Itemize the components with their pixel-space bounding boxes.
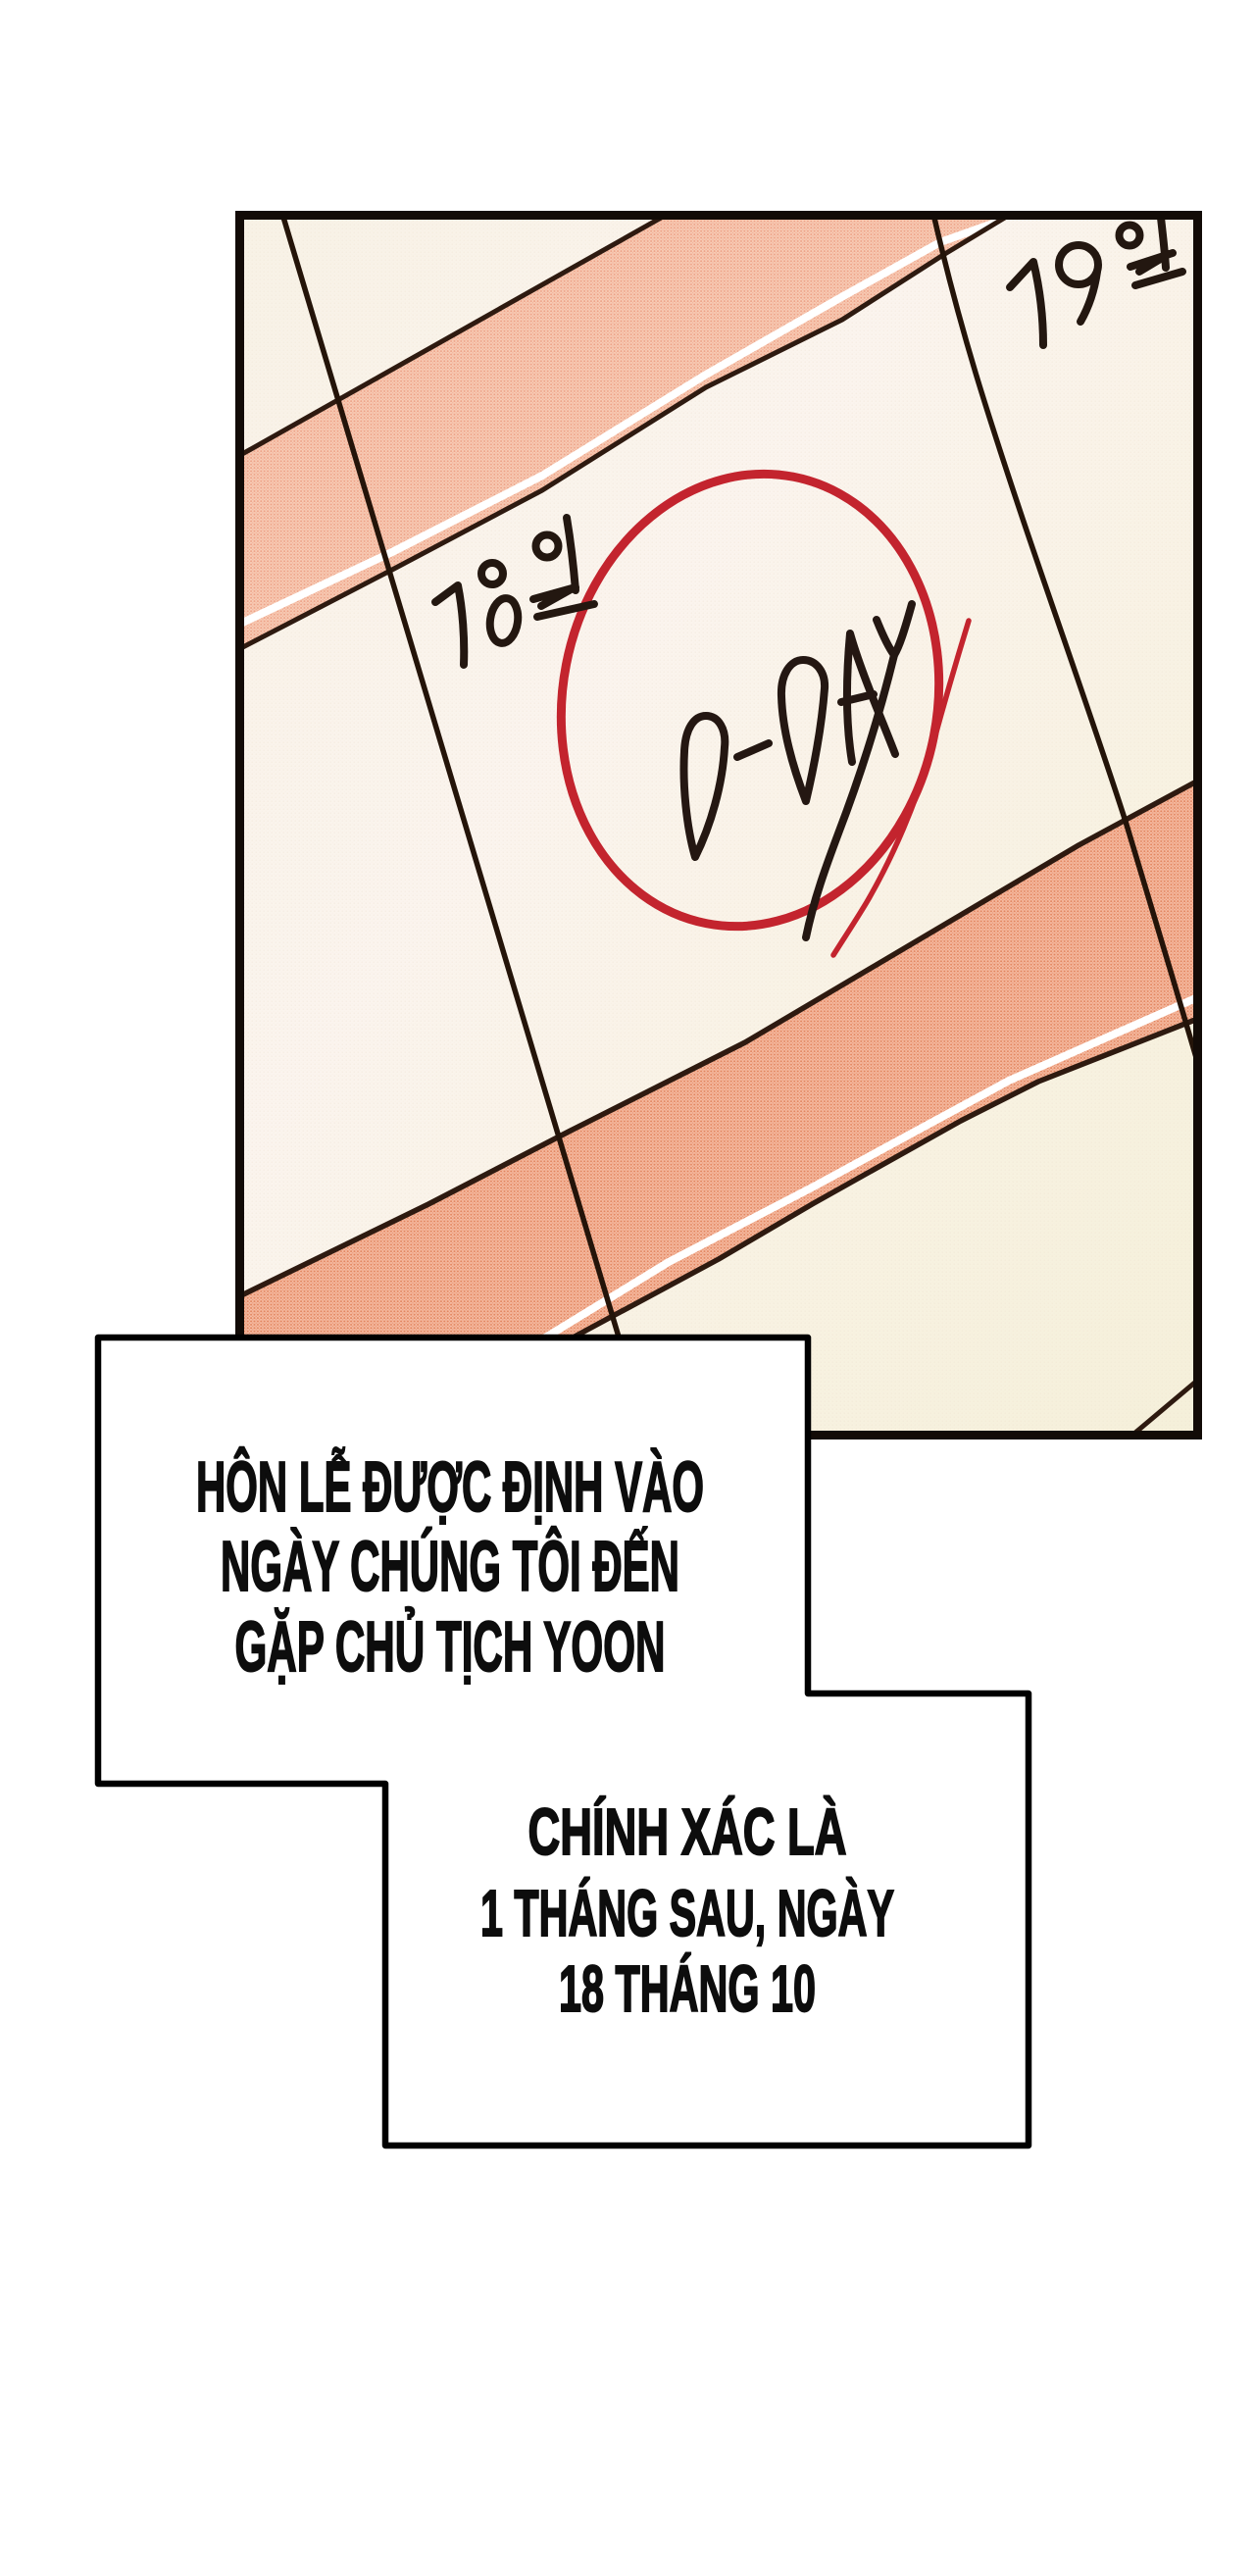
svg-text:GẶP CHỦ TỊCH YOON: GẶP CHỦ TỊCH YOON <box>235 1607 666 1687</box>
svg-text:NGÀY CHÚNG TÔI ĐẾN: NGÀY CHÚNG TÔI ĐẾN <box>221 1527 679 1606</box>
svg-text:CHÍNH XÁC LÀ: CHÍNH XÁC LÀ <box>528 1795 847 1869</box>
svg-text:1 THÁNG SAU, NGÀY: 1 THÁNG SAU, NGÀY <box>480 1877 894 1950</box>
svg-text:18 THÁNG 10: 18 THÁNG 10 <box>559 1952 816 2026</box>
svg-text:HÔN LỄ ĐƯỢC ĐỊNH VÀO: HÔN LỄ ĐƯỢC ĐỊNH VÀO <box>196 1447 704 1527</box>
